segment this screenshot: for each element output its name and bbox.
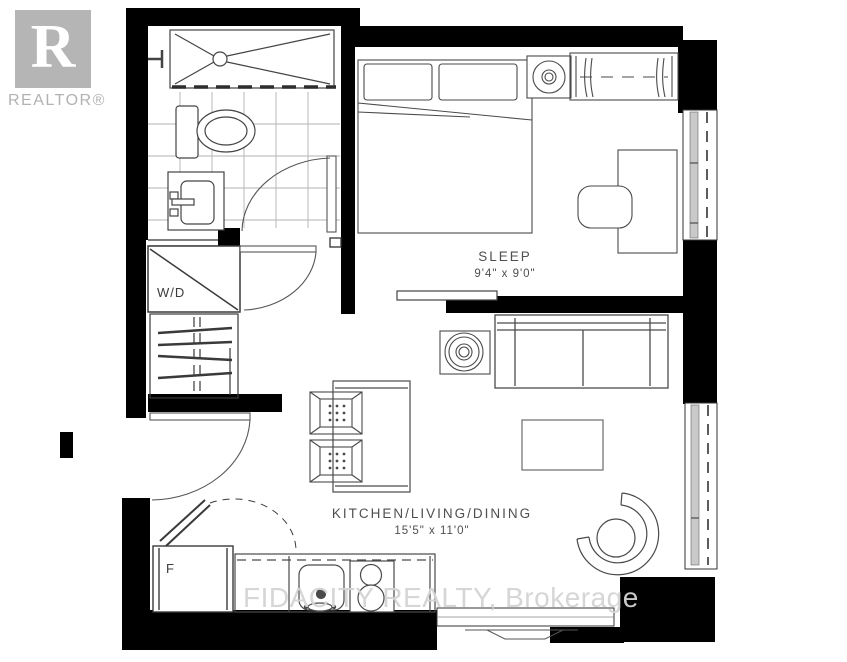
wall-left-upper — [126, 8, 148, 240]
shower — [148, 30, 334, 88]
room-dims-sleep: 9'4" x 9'0" — [474, 268, 535, 280]
room-label-sleep: SLEEP — [478, 249, 532, 264]
wall-left-mid — [126, 238, 146, 418]
armchair — [577, 493, 659, 575]
faucet-spout-icon — [172, 199, 194, 205]
coffee-table — [522, 420, 603, 470]
nightstand-lamp — [527, 56, 571, 98]
entry-closet — [150, 314, 238, 398]
bed — [358, 60, 532, 233]
faucet-handle-icon — [170, 192, 178, 199]
bedroom-closet — [570, 53, 678, 100]
pillow — [439, 64, 517, 100]
wall-bottom-strip — [550, 627, 624, 643]
side-table-lamp — [440, 331, 490, 374]
shower-drain-icon — [213, 52, 227, 66]
bed-fold-line — [358, 103, 532, 120]
floor-plan-page: R REALTOR® FIDACITY REALTY, Brokerage — [0, 0, 847, 662]
dining-chair — [310, 440, 362, 482]
wall-top-bathroom — [126, 8, 360, 26]
brokerage-watermark: FIDACITY REALTY, Brokerage — [243, 582, 639, 614]
room-label-kitchen-living-dining: KITCHEN/LIVING/DINING — [332, 506, 532, 521]
hall-door — [240, 246, 316, 310]
wall-interior-vertical — [341, 26, 355, 314]
sliding-door — [397, 291, 497, 300]
wall-corner-top-right — [678, 40, 717, 113]
living-window — [685, 403, 717, 569]
fridge-label: F — [166, 561, 175, 576]
wall-top-bedroom — [343, 26, 683, 47]
hanger-icon — [158, 328, 232, 378]
bedroom-window — [683, 110, 717, 240]
sofa — [495, 315, 668, 388]
entry-door — [150, 413, 250, 500]
fridge-door-swing — [210, 499, 296, 552]
pillow — [364, 64, 432, 100]
toilet — [176, 106, 255, 158]
room-dims-kitchen-living-dining: 15'5" x 11'0" — [394, 525, 469, 537]
desk-chair — [578, 186, 632, 228]
dining-chair — [310, 392, 362, 434]
washer-dryer-label: W/D — [157, 285, 185, 300]
closet-rod — [194, 317, 200, 396]
wall-right-mid — [683, 240, 717, 404]
faucet-handle-icon — [170, 209, 178, 216]
wall-vestibule — [148, 394, 282, 412]
wall-bath-door-stub — [218, 228, 240, 246]
wall-bottom-left — [122, 610, 437, 650]
shower-head-icon — [148, 50, 162, 68]
bathroom-door — [242, 156, 336, 232]
washer-dryer-closet — [148, 246, 240, 312]
wall-corridor-stub — [60, 432, 73, 458]
floor-plan-svg: SLEEP 9'4" x 9'0" KITCHEN/LIVING/DINING … — [0, 0, 847, 662]
vanity-sink — [168, 172, 224, 230]
fridge-door-open — [160, 500, 210, 546]
